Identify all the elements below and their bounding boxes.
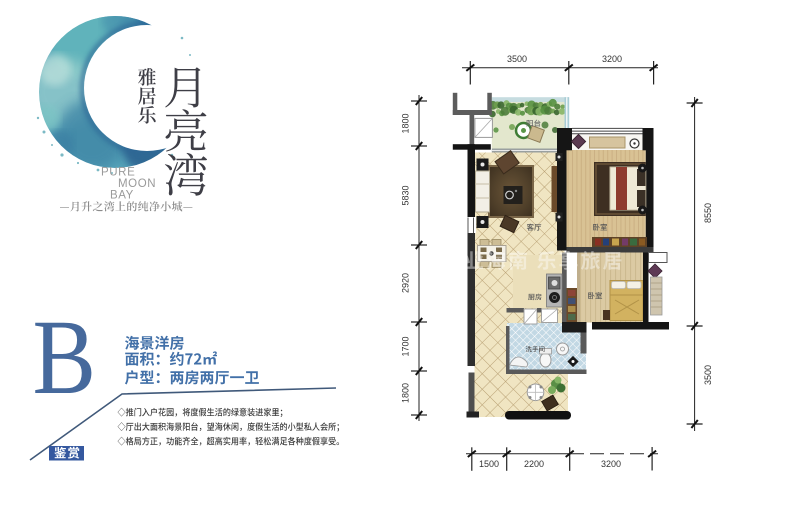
svg-text:2200: 2200 xyxy=(524,459,544,469)
svg-text:MOON: MOON xyxy=(118,178,156,190)
svg-text:1500: 1500 xyxy=(479,459,499,469)
svg-text:8550: 8550 xyxy=(703,203,713,223)
svg-text:BAY: BAY xyxy=(110,190,134,202)
svg-text:2920: 2920 xyxy=(401,273,411,293)
svg-text:1700: 1700 xyxy=(401,336,411,356)
svg-text:3500: 3500 xyxy=(703,365,713,385)
svg-text:5830: 5830 xyxy=(401,185,411,205)
svg-text:B: B xyxy=(33,298,97,416)
svg-text:PURE: PURE xyxy=(101,167,135,179)
svg-text:3500: 3500 xyxy=(507,54,527,64)
svg-text:1800: 1800 xyxy=(401,113,411,133)
svg-text:1800: 1800 xyxy=(401,383,411,403)
svg-text:3200: 3200 xyxy=(602,54,622,64)
svg-text:3200: 3200 xyxy=(601,459,621,469)
